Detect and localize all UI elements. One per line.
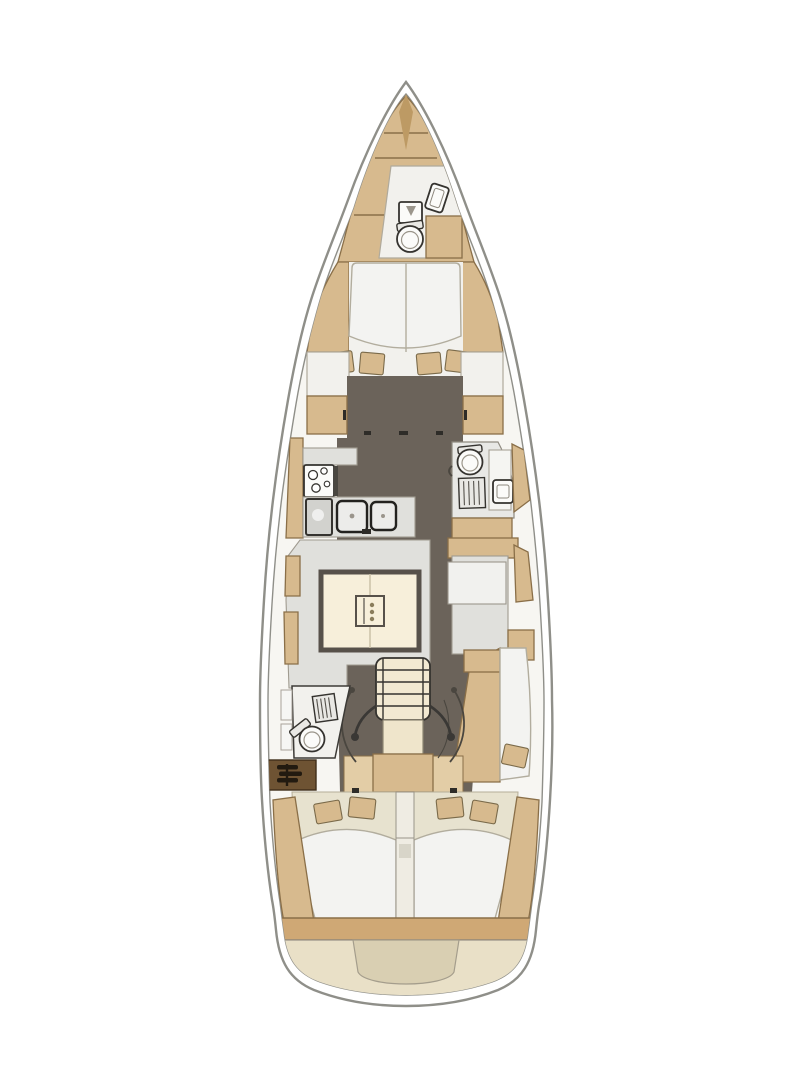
companionway-platform — [373, 754, 433, 792]
settee-cushion — [448, 562, 506, 604]
double-sink-icon — [337, 501, 396, 534]
aft-bulkhead-band — [279, 918, 533, 940]
salon-hull-trim-2 — [284, 612, 298, 664]
salon-hull-trim-1 — [285, 556, 300, 596]
aft-cabin-divider — [396, 792, 414, 922]
shower-grate-icon — [312, 694, 337, 723]
floorplan-canvas — [0, 0, 810, 1080]
pillow — [469, 800, 498, 824]
engine-compartment — [268, 760, 316, 790]
wardrobe-port — [307, 396, 347, 434]
washbasin-icon — [493, 480, 513, 503]
bench-starboard — [461, 352, 503, 396]
bench-port — [307, 352, 349, 396]
berth-pillow — [501, 744, 529, 769]
aft-wedge-port-small — [344, 756, 373, 792]
shower-grate-icon — [458, 478, 485, 509]
galley-counter-top — [303, 448, 357, 465]
transom — [279, 918, 533, 1007]
toilet-icon — [458, 445, 483, 475]
head-door-panel — [281, 690, 292, 720]
pillow — [348, 797, 376, 820]
salon-table — [321, 572, 419, 650]
yacht-floorplan — [0, 0, 810, 1080]
aft-cabin-starboard — [414, 788, 539, 922]
companionway-steps-icon — [376, 658, 430, 720]
forward-head-counter — [426, 216, 462, 258]
berth-step — [464, 650, 500, 672]
head-door-panel — [281, 724, 292, 750]
companionway-landing — [383, 720, 423, 754]
washbasin-icon — [399, 202, 422, 223]
aft-wedge-stb-small — [433, 756, 463, 792]
pillow — [436, 797, 464, 820]
transom-locker — [353, 940, 459, 984]
toilet-icon — [397, 220, 424, 252]
forward-cabin-floor — [347, 376, 463, 438]
wardrobe-starboard — [463, 396, 503, 434]
head-cabinet — [452, 518, 512, 540]
pillow — [313, 800, 342, 824]
stove-icon — [304, 465, 338, 497]
v-berth-duvet — [349, 263, 461, 348]
bottle-holder — [356, 596, 384, 626]
forward-cabin — [307, 262, 503, 438]
settee-back — [448, 538, 518, 558]
aft-cabin-port — [273, 788, 396, 922]
